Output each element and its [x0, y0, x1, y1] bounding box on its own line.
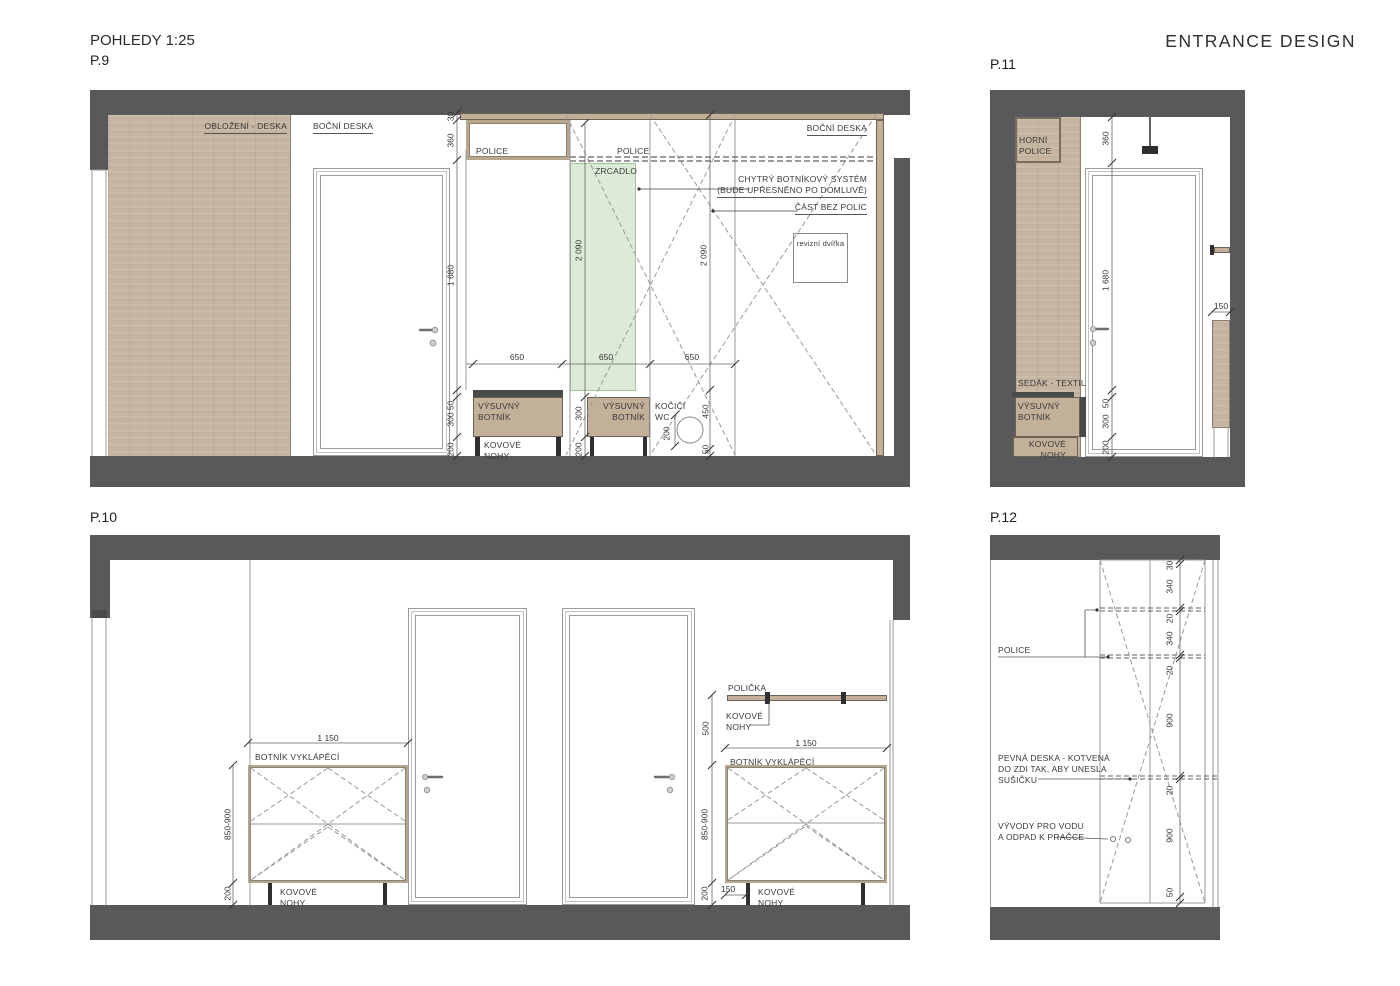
door-handle: [1090, 326, 1108, 345]
panel-label-p10: P.10: [90, 509, 117, 525]
door-handle-2: [655, 774, 675, 792]
panel-label-p9: P.9: [90, 52, 109, 68]
dim: 500: [701, 709, 712, 749]
water-outlets-label: VÝVODY PRO VODU A ODPAD K PRAČCE: [998, 821, 1084, 843]
dim: 150: [1203, 301, 1239, 312]
dim: 1 150: [786, 738, 826, 749]
structure-lines: [991, 560, 1219, 907]
shelf-dashed-line: [570, 157, 876, 161]
dim: 360: [446, 121, 457, 161]
side-board-label-right: BOČNÍ DESKA: [807, 123, 867, 136]
dim: 1 150: [308, 733, 348, 744]
dim: 200: [700, 874, 711, 914]
elevation-p9: OBLOŽENÍ - DESKA BOČNÍ DESKA BOČNÍ DESKA…: [90, 90, 910, 487]
dim: 200: [1101, 428, 1112, 468]
small-shelf-label: POLIČKA: [728, 683, 766, 694]
p12-linework: [990, 535, 1220, 940]
dim: 650: [497, 352, 537, 363]
dim: 650: [672, 352, 712, 363]
dimension-lines: [1112, 117, 1230, 457]
pendant-light: [1142, 117, 1158, 154]
dim: 200: [223, 874, 234, 914]
brand-title: ENTRANCE DESIGN: [1165, 31, 1356, 52]
fixed-board-label: PEVNÁ DESKA - KOTVENÁ DO ZDI TAK, ABY UN…: [998, 753, 1110, 786]
drawing-sheet: POHLEDY 1:25 P.9 ENTRANCE DESIGN P.10 P.…: [0, 0, 1400, 986]
dim: 2 090: [699, 236, 710, 276]
mirror-label: ZRCADLO: [595, 166, 637, 177]
shelf-legs-label: KOVOVÉ NOHY: [726, 711, 763, 733]
shelf-label-mid: POLICE: [617, 146, 649, 157]
flap-cabinet-label-left: BOTNÍK VYKLÁPĚCÍ: [255, 752, 339, 763]
dim: 50: [701, 430, 712, 470]
panel-label-p12: P.12: [990, 509, 1017, 525]
metal-legs-label: KOVOVÉ NOHY: [280, 887, 317, 909]
dim: 20: [1165, 651, 1176, 691]
dim: 20: [1165, 771, 1176, 811]
dim: 50: [1165, 873, 1176, 913]
dim: 1 680: [446, 256, 457, 296]
elevation-p12: POLICE PEVNÁ DESKA - KOTVENÁ DO ZDI TAK,…: [990, 535, 1220, 940]
metal-legs-label: KOVOVÉ NOHY: [1018, 439, 1066, 461]
dim: 450: [701, 392, 712, 432]
dim: 850-900: [223, 805, 234, 845]
elevation-p11: HORNÍ POLICE SEDÁK - TEXTIL VÝSUVNÝ BOTN…: [990, 90, 1245, 487]
flap-cabinet-label-right: BOTNÍK VYKLÁPĚCÍ: [730, 757, 814, 768]
dim: 200: [574, 430, 585, 470]
dimension-lines: [233, 695, 887, 905]
pullout-label: VÝSUVNÝ BOTNÍK: [478, 401, 520, 423]
cladding-label: OBLOŽENÍ - DESKA: [204, 121, 287, 134]
dim: 900: [1165, 816, 1176, 856]
pullout-label: VÝSUVNÝ BOTNÍK: [1018, 401, 1060, 423]
panel-label-p11: P.11: [990, 56, 1016, 72]
door-handle-1: [422, 774, 442, 792]
leader-lines: [998, 608, 1132, 842]
upper-shelf-label: HORNÍ POLICE: [1019, 135, 1051, 157]
structure-lines: [92, 560, 893, 905]
shelf-label: POLICE: [998, 645, 1030, 656]
pullout-label-mid: VÝSUVNÝ BOTNÍK: [603, 401, 645, 423]
dim: 650: [586, 352, 626, 363]
no-shelves-label: ČÁST BEZ POLIC: [795, 202, 867, 215]
structure-lines: [1214, 428, 1228, 457]
metal-legs-label-right: KOVOVÉ NOHY: [758, 887, 795, 909]
shelf-label: POLICE: [476, 146, 508, 157]
dim: 200: [662, 414, 673, 454]
dim: 850-900: [700, 805, 711, 845]
seat-label: SEDÁK - TEXTIL: [1018, 378, 1086, 389]
access-panel-label: revizní dvířka: [793, 239, 848, 249]
metal-legs-label: KOVOVÉ NOHY: [484, 440, 521, 462]
dim: 1 680: [1101, 261, 1112, 301]
smart-shoe-system-label: CHYTRÝ BOTNÍKOVÝ SYSTÉM (BUDE UPŘESNĚNO …: [717, 174, 867, 198]
elevation-p10: BOTNÍK VYKLÁPĚCÍ KOVOVÉ NOHY POLIČKA KOV…: [90, 535, 910, 940]
dim: 2 090: [574, 231, 585, 271]
door-handle: [420, 327, 438, 346]
dim: 150: [710, 884, 746, 895]
dim: 200: [446, 430, 457, 470]
dim: 360: [1101, 119, 1112, 159]
dim: 900: [1165, 701, 1176, 741]
page-title: POHLEDY 1:25: [90, 32, 195, 49]
dim: 300: [574, 394, 585, 434]
dimension-ticks: [229, 691, 891, 909]
side-board-label: BOČNÍ DESKA: [313, 121, 373, 134]
dimension-ticks: [1108, 113, 1234, 461]
